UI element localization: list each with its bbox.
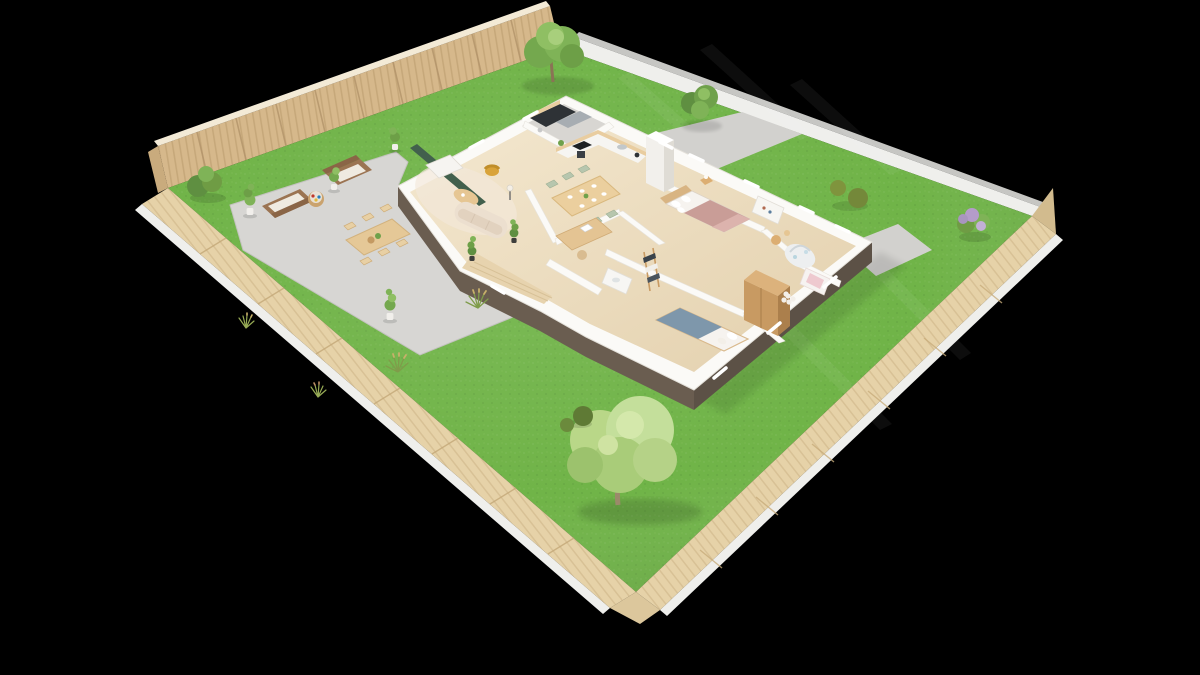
corner-shrub-c bbox=[198, 166, 214, 182]
shelf-decor bbox=[762, 206, 765, 209]
kids-stool bbox=[784, 230, 790, 236]
floor-plan-render bbox=[0, 0, 1200, 675]
kitchen-tall-cabinet bbox=[646, 131, 674, 192]
game-piece-red bbox=[311, 194, 314, 197]
mustard-armchair bbox=[485, 166, 499, 176]
garage-appliance bbox=[538, 128, 543, 133]
table-plant-decor bbox=[375, 233, 381, 239]
tree3-shadow bbox=[578, 499, 702, 525]
dark-bush-2 bbox=[560, 418, 574, 432]
table-bowl bbox=[367, 236, 374, 243]
olive-topiary-2 bbox=[848, 188, 868, 208]
basin bbox=[612, 278, 620, 283]
coffee-table-decor bbox=[461, 193, 465, 197]
game-piece-yellow bbox=[314, 198, 317, 201]
lilac-blossom-2 bbox=[976, 221, 986, 231]
olive-topiary-1 bbox=[830, 180, 846, 196]
play-mat-toy bbox=[793, 255, 797, 259]
centerpiece bbox=[584, 194, 589, 199]
coffee-machine bbox=[635, 153, 640, 158]
kitchen-plant bbox=[558, 140, 564, 146]
scene-canvas bbox=[0, 0, 1200, 675]
oven bbox=[577, 151, 585, 158]
tree2-shadow bbox=[682, 120, 722, 132]
play-mat-toy-2 bbox=[804, 250, 808, 254]
shelf-decor-2 bbox=[768, 210, 771, 213]
tree1-shadow bbox=[522, 77, 594, 95]
sink bbox=[617, 144, 627, 149]
round-rattan-table bbox=[308, 191, 324, 207]
dark-bush-1 bbox=[573, 406, 593, 426]
game-piece-blue bbox=[317, 195, 320, 198]
kids-round-table bbox=[771, 235, 781, 245]
lilac-shadow bbox=[959, 232, 991, 242]
office-chair bbox=[577, 250, 587, 260]
lilac-blossom-3 bbox=[958, 214, 968, 224]
table-lamp bbox=[704, 175, 708, 179]
